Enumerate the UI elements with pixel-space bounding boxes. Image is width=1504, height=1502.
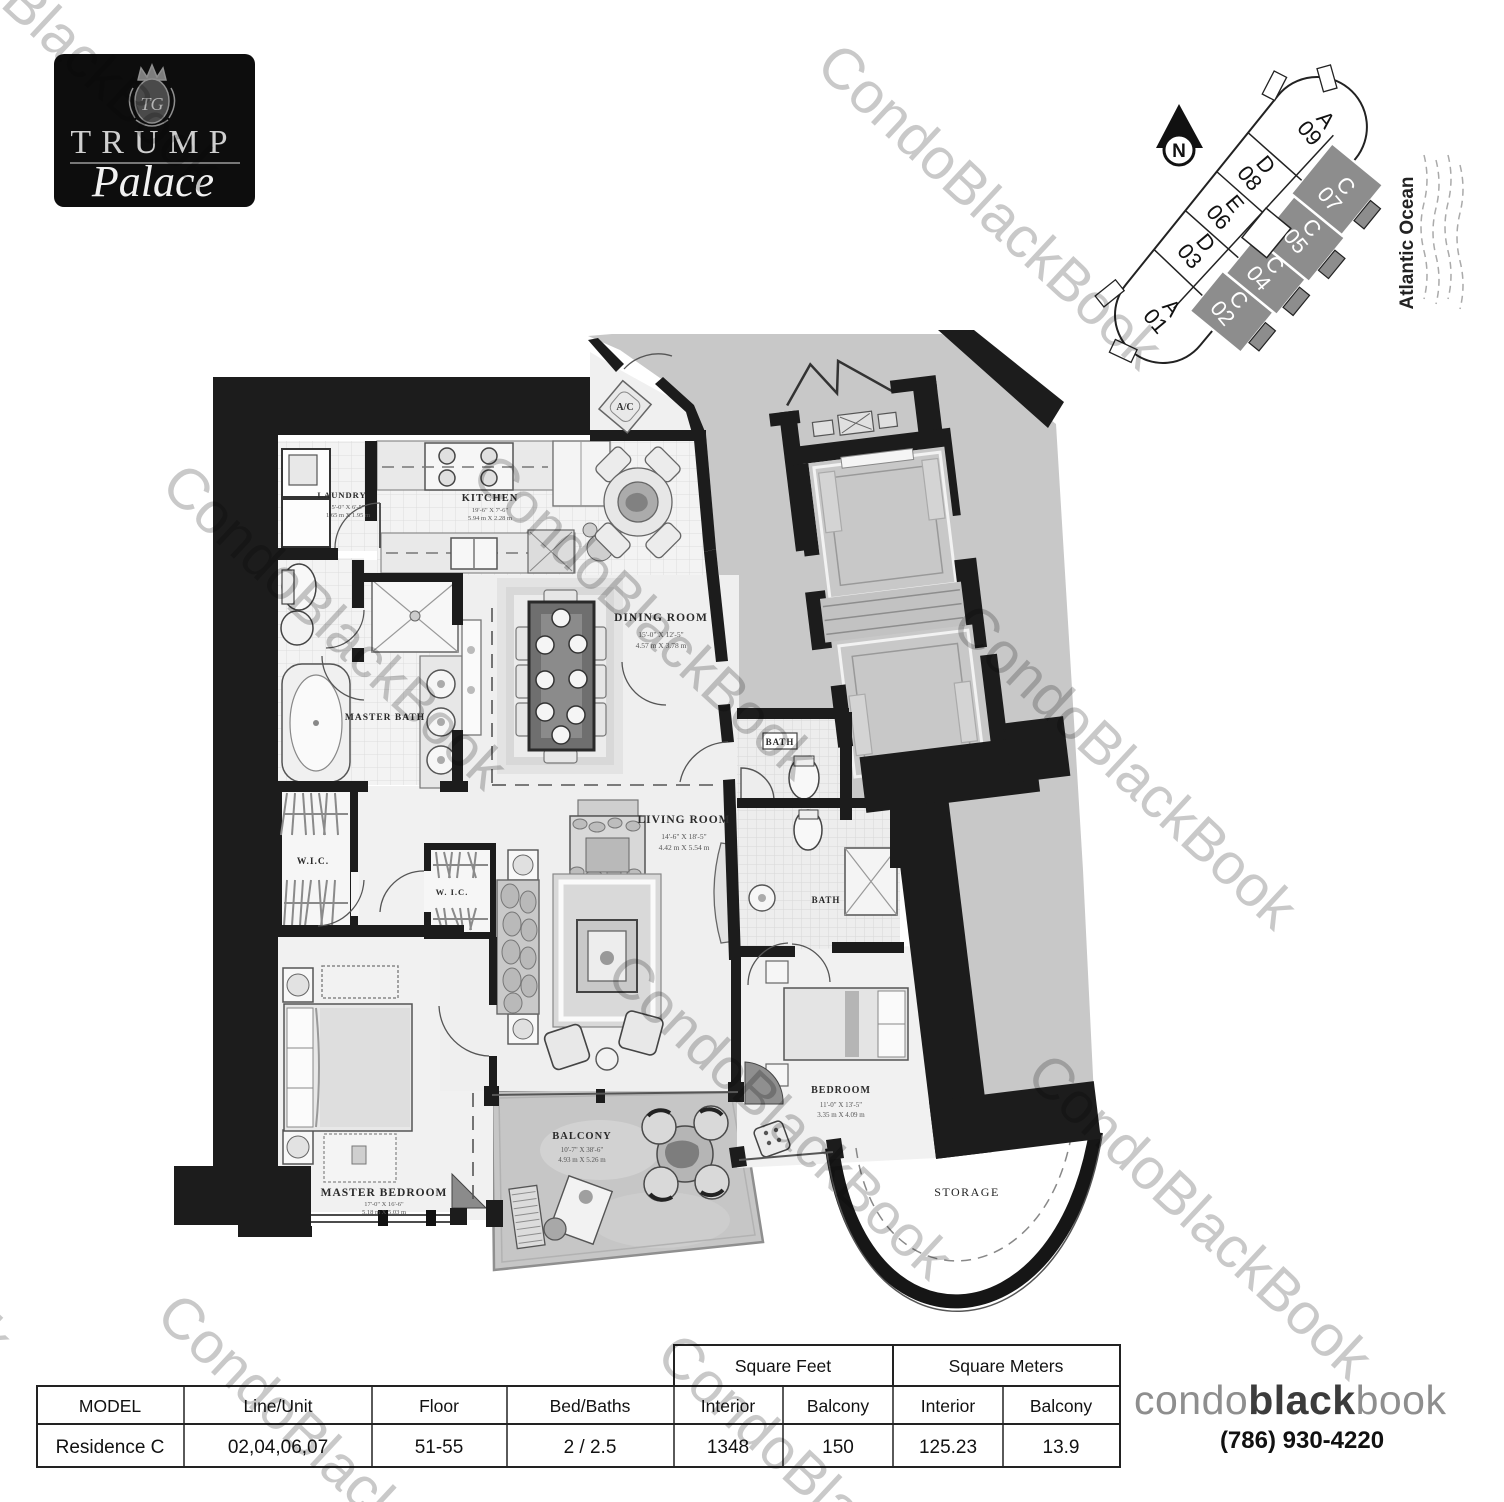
svg-text:4.42 m X 5.54 m: 4.42 m X 5.54 m: [659, 843, 710, 852]
svg-text:51-55: 51-55: [415, 1437, 464, 1458]
svg-text:Residence C: Residence C: [56, 1437, 165, 1458]
svg-text:4.93 m X 5.26 m: 4.93 m X 5.26 m: [558, 1156, 606, 1164]
svg-text:10'-7" X 38'-6": 10'-7" X 38'-6": [561, 1146, 604, 1154]
svg-text:N: N: [1172, 141, 1186, 162]
svg-text:(786) 930-4220: (786) 930-4220: [1220, 1427, 1384, 1454]
svg-text:1.65 m X 1.95 m: 1.65 m X 1.95 m: [326, 512, 370, 519]
svg-text:W. I.C.: W. I.C.: [436, 887, 469, 897]
svg-text:Square Meters: Square Meters: [949, 1356, 1064, 1376]
svg-text:STORAGE: STORAGE: [934, 1185, 1000, 1199]
svg-text:W.I.C.: W.I.C.: [297, 857, 329, 867]
svg-text:Interior: Interior: [921, 1396, 976, 1416]
svg-text:condoblackbook: condoblackbook: [1134, 1377, 1446, 1423]
svg-text:BATH: BATH: [812, 895, 841, 905]
svg-text:Balcony: Balcony: [1030, 1396, 1093, 1416]
svg-text:5.18 m X 5.03 m: 5.18 m X 5.03 m: [362, 1209, 406, 1216]
svg-text:BEDROOM: BEDROOM: [811, 1085, 871, 1096]
svg-text:11'-0" X 13'-5": 11'-0" X 13'-5": [820, 1101, 862, 1109]
svg-text:13.9: 13.9: [1043, 1437, 1080, 1458]
svg-text:MODEL: MODEL: [79, 1396, 142, 1416]
svg-text:Square Feet: Square Feet: [735, 1356, 831, 1376]
svg-text:Atlantic Ocean: Atlantic Ocean: [1397, 176, 1418, 309]
svg-text:Floor: Floor: [419, 1396, 459, 1416]
svg-text:LAUNDRY: LAUNDRY: [317, 490, 366, 500]
svg-text:125.23: 125.23: [919, 1437, 977, 1458]
svg-text:LIVING ROOM: LIVING ROOM: [637, 814, 730, 826]
svg-text:2 / 2.5: 2 / 2.5: [564, 1437, 617, 1458]
svg-text:Bed/Baths: Bed/Baths: [550, 1396, 631, 1416]
svg-text:BALCONY: BALCONY: [552, 1131, 612, 1142]
svg-text:14'-6" X 18'-5": 14'-6" X 18'-5": [661, 832, 707, 841]
svg-text:Balcony: Balcony: [807, 1396, 870, 1416]
svg-text:5'-0" X 6'-5": 5'-0" X 6'-5": [332, 504, 365, 511]
svg-text:MASTER BEDROOM: MASTER BEDROOM: [321, 1187, 448, 1199]
svg-text:A/C: A/C: [616, 402, 633, 413]
svg-text:17'-0" X 16'-6": 17'-0" X 16'-6": [364, 1201, 404, 1208]
